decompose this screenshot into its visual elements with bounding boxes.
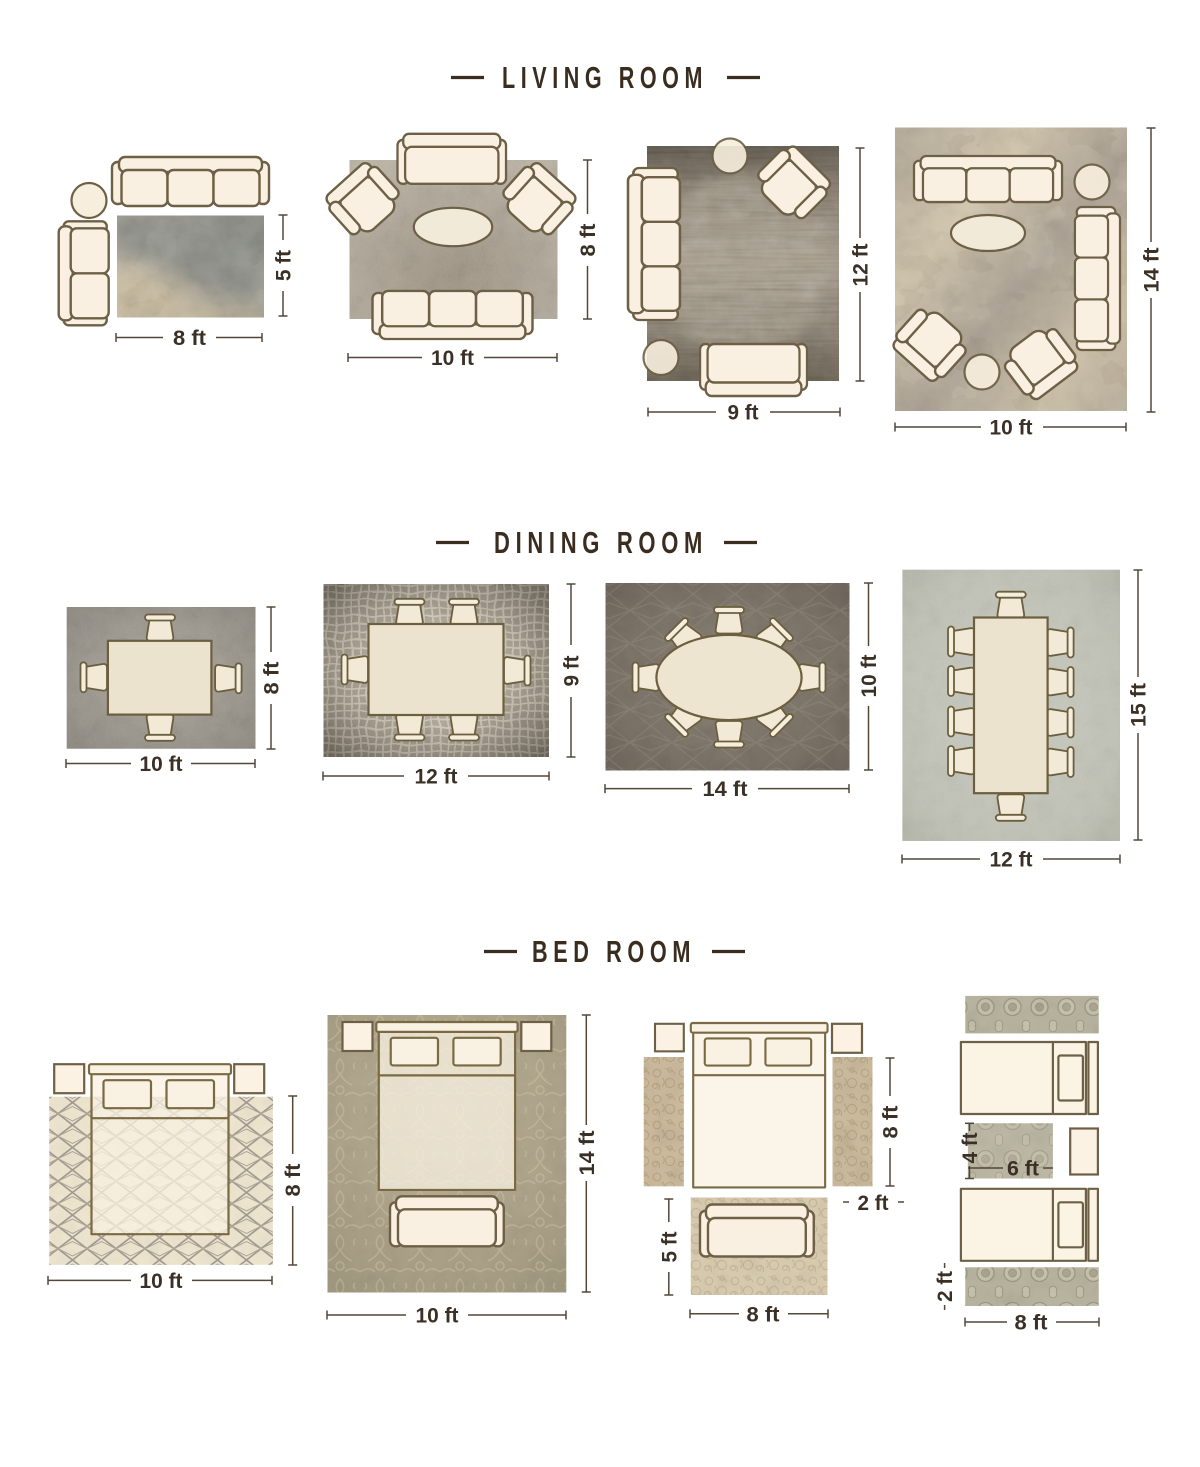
svg-text:8 ft: 8 ft: [173, 326, 206, 350]
svg-text:14 ft: 14 ft: [703, 777, 748, 801]
svg-text:10 ft: 10 ft: [140, 752, 183, 776]
svg-text:10 ft: 10 ft: [431, 346, 474, 370]
svg-text:10 ft: 10 ft: [140, 1269, 183, 1293]
svg-text:6 ft: 6 ft: [1007, 1157, 1039, 1181]
svg-text:4 ft: 4 ft: [958, 1133, 982, 1164]
svg-text:LIVING ROOM: LIVING ROOM: [502, 60, 708, 95]
svg-text:14 ft: 14 ft: [575, 1131, 599, 1176]
svg-text:2 ft: 2 ft: [933, 1271, 957, 1302]
svg-text:5 ft: 5 ft: [657, 1232, 681, 1263]
svg-text:8 ft: 8 ft: [576, 224, 600, 257]
svg-text:12 ft: 12 ft: [990, 848, 1033, 872]
svg-text:10 ft: 10 ft: [416, 1304, 459, 1328]
svg-text:8 ft: 8 ft: [1015, 1311, 1048, 1335]
svg-text:9 ft: 9 ft: [560, 656, 584, 687]
svg-text:12 ft: 12 ft: [849, 244, 873, 287]
svg-text:2 ft: 2 ft: [858, 1191, 889, 1215]
svg-text:8 ft: 8 ft: [747, 1303, 780, 1327]
svg-text:8 ft: 8 ft: [879, 1106, 903, 1139]
svg-text:10 ft: 10 ft: [990, 416, 1033, 440]
svg-text:12 ft: 12 ft: [415, 765, 458, 789]
svg-text:8 ft: 8 ft: [281, 1164, 305, 1197]
svg-text:14 ft: 14 ft: [1140, 248, 1164, 293]
svg-text:BED ROOM: BED ROOM: [532, 934, 696, 969]
svg-text:9 ft: 9 ft: [728, 401, 759, 425]
svg-text:15 ft: 15 ft: [1127, 683, 1151, 727]
svg-text:10 ft: 10 ft: [857, 655, 881, 698]
svg-text:DINING ROOM: DINING ROOM: [494, 525, 708, 560]
svg-text:8 ft: 8 ft: [260, 662, 284, 695]
svg-text:5 ft: 5 ft: [272, 250, 296, 281]
